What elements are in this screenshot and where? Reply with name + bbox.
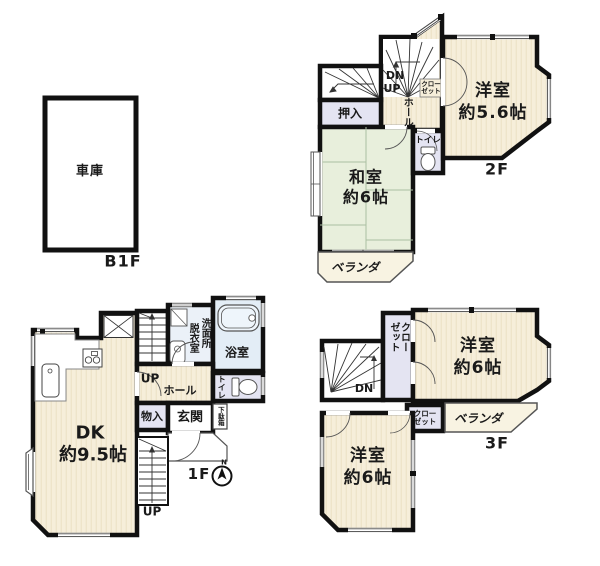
label-f2-up: UP (384, 83, 401, 95)
f1-dk-bay-window (26, 448, 35, 496)
f2-corner-bay-window (547, 79, 552, 118)
toilet-tank-icon (421, 147, 435, 154)
compass-icon (213, 467, 232, 486)
label-f3-room1: 洋室 (460, 338, 496, 356)
label-f2-veranda: ベランダ (331, 262, 382, 275)
f2-western-room-top-window (457, 34, 529, 40)
label-f2-hall: ホール (401, 97, 412, 127)
stove-icon (83, 349, 102, 367)
label-f2-closet: クローゼット (420, 81, 442, 95)
label-dk-size: 約9.5帖 (59, 447, 127, 466)
f1-xbox (104, 316, 133, 338)
f1-dk-bottom-window (58, 533, 110, 538)
toilet-bowl-icon (421, 154, 435, 171)
label-1f: 1F (188, 467, 211, 483)
f3-stairs (320, 341, 383, 400)
label-senmenjo: 洗面所 (199, 318, 210, 348)
label-datsuishitsu: 脱衣室 (187, 323, 198, 353)
label-f3-dn: DN (355, 383, 373, 395)
label-f1-hall: ホール (164, 385, 197, 397)
toilet-bowl-icon (239, 380, 257, 395)
label-f3-closet-small: クローゼット (412, 410, 438, 426)
f1-mid-stairs (137, 311, 168, 364)
label-f2-oshiire: 押入 (338, 108, 362, 121)
sink-icon (42, 364, 59, 397)
f1-bottom-stairs (137, 437, 168, 505)
label-f3-closet-tall: クローゼット (388, 318, 409, 356)
label-compass-n: N (221, 459, 227, 466)
f1-porch (168, 431, 227, 461)
label-f3-room2-size: 約6帖 (344, 470, 393, 488)
f3-room-top-window (428, 307, 516, 313)
label-f3-room2: 洋室 (350, 448, 386, 466)
label-dk: DK (76, 425, 105, 444)
label-f2-washitsu-size: 約6帖 (343, 190, 389, 207)
label-genkan: 玄関 (177, 411, 203, 425)
label-f2-room1: 洋室 (475, 83, 511, 101)
label-f1-toilet: トイレ (217, 375, 225, 399)
label-f3-veranda: ベランダ (454, 413, 505, 426)
toilet-tank-icon (232, 378, 239, 396)
label-f2-room1-size: 約5.6帖 (458, 105, 527, 123)
label-f3-room1-size: 約6帖 (454, 360, 503, 378)
floor-plan-canvas: 車庫 B1F DN UP ホール クローゼット 押入 和室 約6帖 トイレ 洋室… (0, 0, 600, 566)
label-b1f: B1F (104, 254, 141, 271)
label-bathroom: 浴室 (225, 347, 249, 360)
label-f2-toilet: トイレ (415, 137, 441, 146)
f1-bathroom (213, 296, 265, 371)
f2-washitsu-window-bay (311, 152, 322, 216)
label-getabako: 下駄箱 (217, 406, 224, 426)
label-f2-dn: DN (386, 70, 404, 82)
label-monoire: 物入 (141, 411, 163, 423)
label-f2-washitsu: 和室 (349, 170, 383, 187)
label-f1-up-mid: UP (141, 373, 160, 386)
label-3f: 3F (485, 436, 509, 453)
f2-plan (311, 14, 551, 282)
label-2f: 2F (485, 162, 509, 179)
f3-corner-bay-window (547, 348, 552, 378)
label-f1-up-bottom: UP (143, 506, 162, 519)
label-garage: 車庫 (76, 165, 104, 179)
